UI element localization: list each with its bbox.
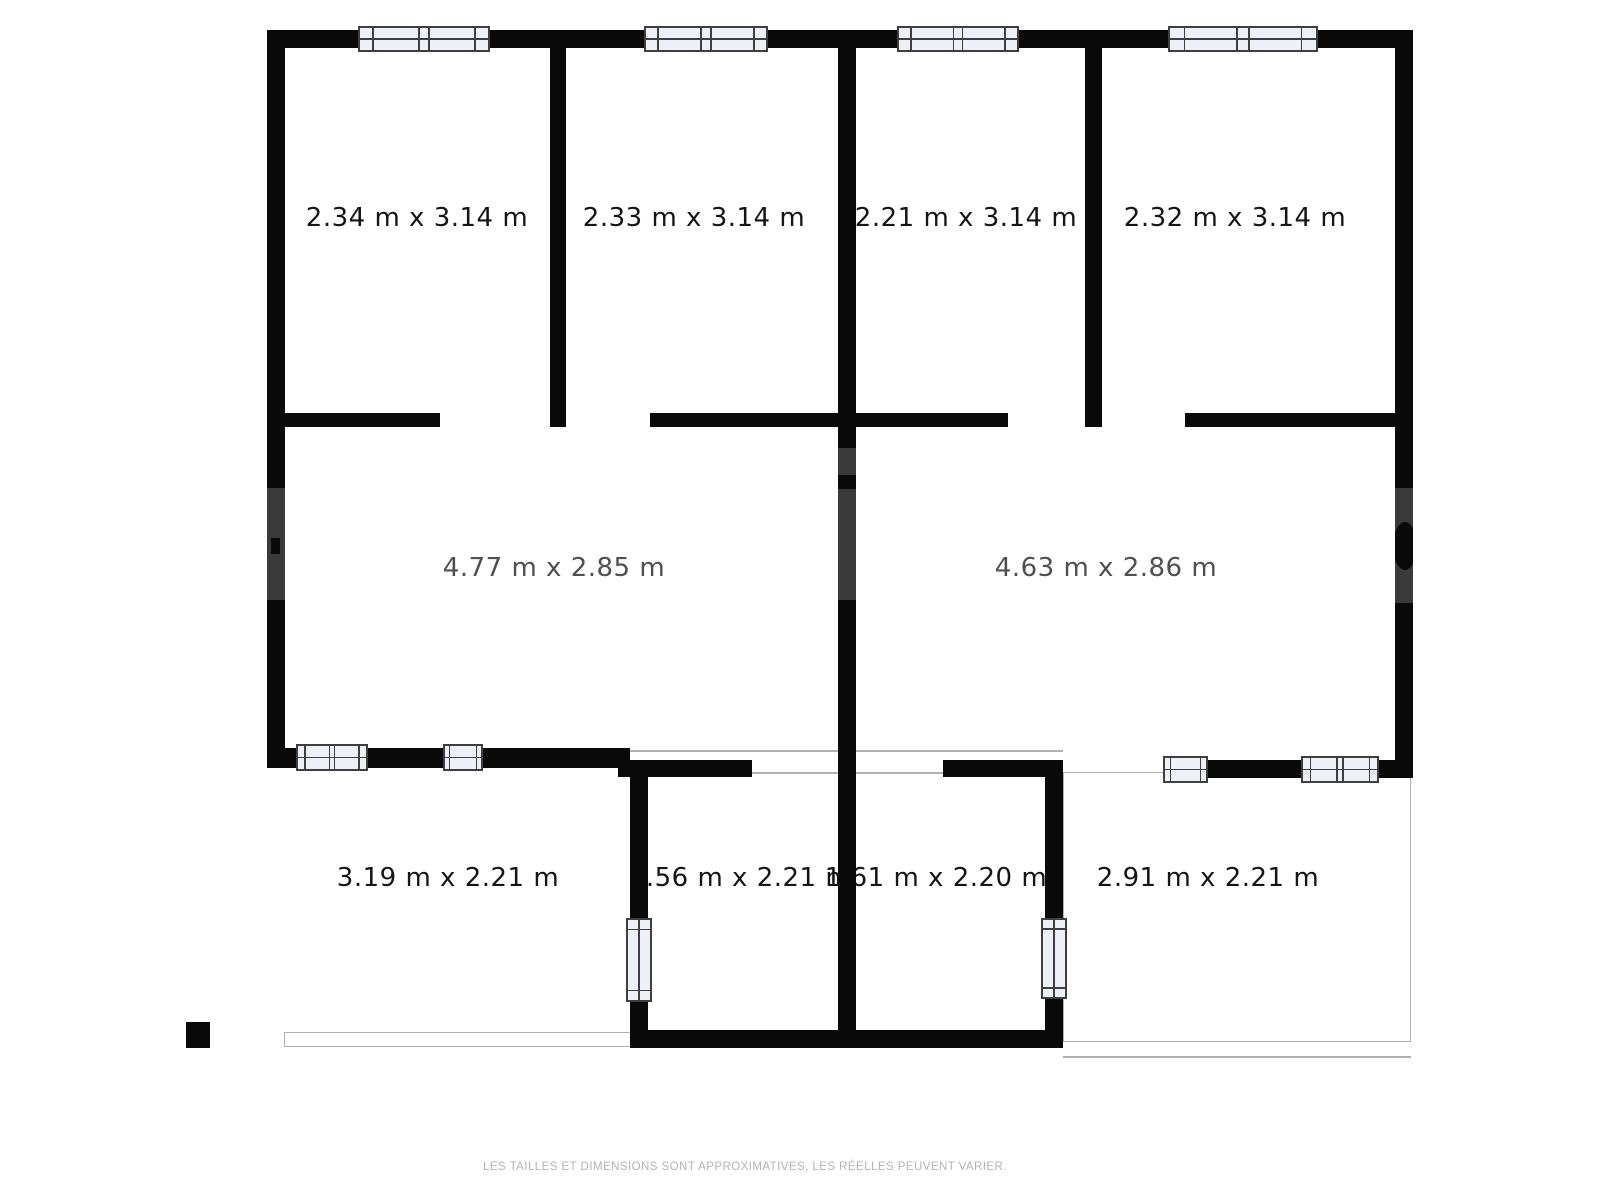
- window-mullion: [899, 38, 1017, 40]
- window-mullion: [1004, 28, 1006, 50]
- window-mullion: [329, 746, 331, 769]
- window-mullion: [628, 990, 650, 992]
- window-mullion: [1170, 38, 1316, 40]
- window-mullion: [710, 28, 712, 50]
- window-mullion: [372, 28, 374, 50]
- window-mullion: [1043, 928, 1065, 930]
- window-mullion: [657, 28, 659, 50]
- window-mullion: [1236, 28, 1238, 50]
- window-mullion: [1200, 758, 1202, 781]
- window-mullion: [646, 38, 766, 40]
- window-marker: [443, 744, 483, 771]
- window-mullion: [1342, 758, 1344, 781]
- window-mullion: [1248, 28, 1250, 50]
- floorplan-canvas: 2.34 m x 3.14 m 2.33 m x 3.14 m 2.21 m x…: [0, 0, 1600, 1200]
- window-mullion: [476, 746, 478, 769]
- window-mullion: [1301, 28, 1303, 50]
- window-marker: [1301, 756, 1379, 783]
- window-mullion: [638, 920, 640, 1000]
- window-mullion: [953, 28, 955, 50]
- windows-layer: [0, 0, 1600, 1200]
- window-mullion: [418, 28, 420, 50]
- window-mullion: [700, 28, 702, 50]
- window-mullion: [1369, 758, 1371, 781]
- window-mullion: [449, 746, 451, 769]
- window-mullion: [428, 28, 430, 50]
- window-mullion: [628, 929, 650, 931]
- window-mullion: [910, 28, 912, 50]
- window-marker: [1168, 26, 1318, 52]
- window-marker: [296, 744, 368, 771]
- window-mullion: [1043, 987, 1065, 989]
- window-mullion: [1336, 758, 1338, 781]
- window-mullion: [360, 38, 488, 40]
- window-marker: [626, 918, 652, 1002]
- window-mullion: [753, 28, 755, 50]
- window-mullion: [334, 746, 336, 769]
- window-mullion: [1310, 758, 1312, 781]
- window-mullion: [1053, 920, 1055, 997]
- window-mullion: [1184, 28, 1186, 50]
- window-mullion: [1303, 769, 1377, 771]
- window-mullion: [358, 746, 360, 769]
- window-marker: [358, 26, 490, 52]
- window-mullion: [962, 28, 964, 50]
- window-mullion: [304, 746, 306, 769]
- window-mullion: [474, 28, 476, 50]
- window-marker: [644, 26, 768, 52]
- window-marker: [897, 26, 1019, 52]
- window-marker: [1041, 918, 1067, 999]
- window-mullion: [1170, 758, 1172, 781]
- window-marker: [1163, 756, 1208, 783]
- window-mullion: [298, 757, 366, 759]
